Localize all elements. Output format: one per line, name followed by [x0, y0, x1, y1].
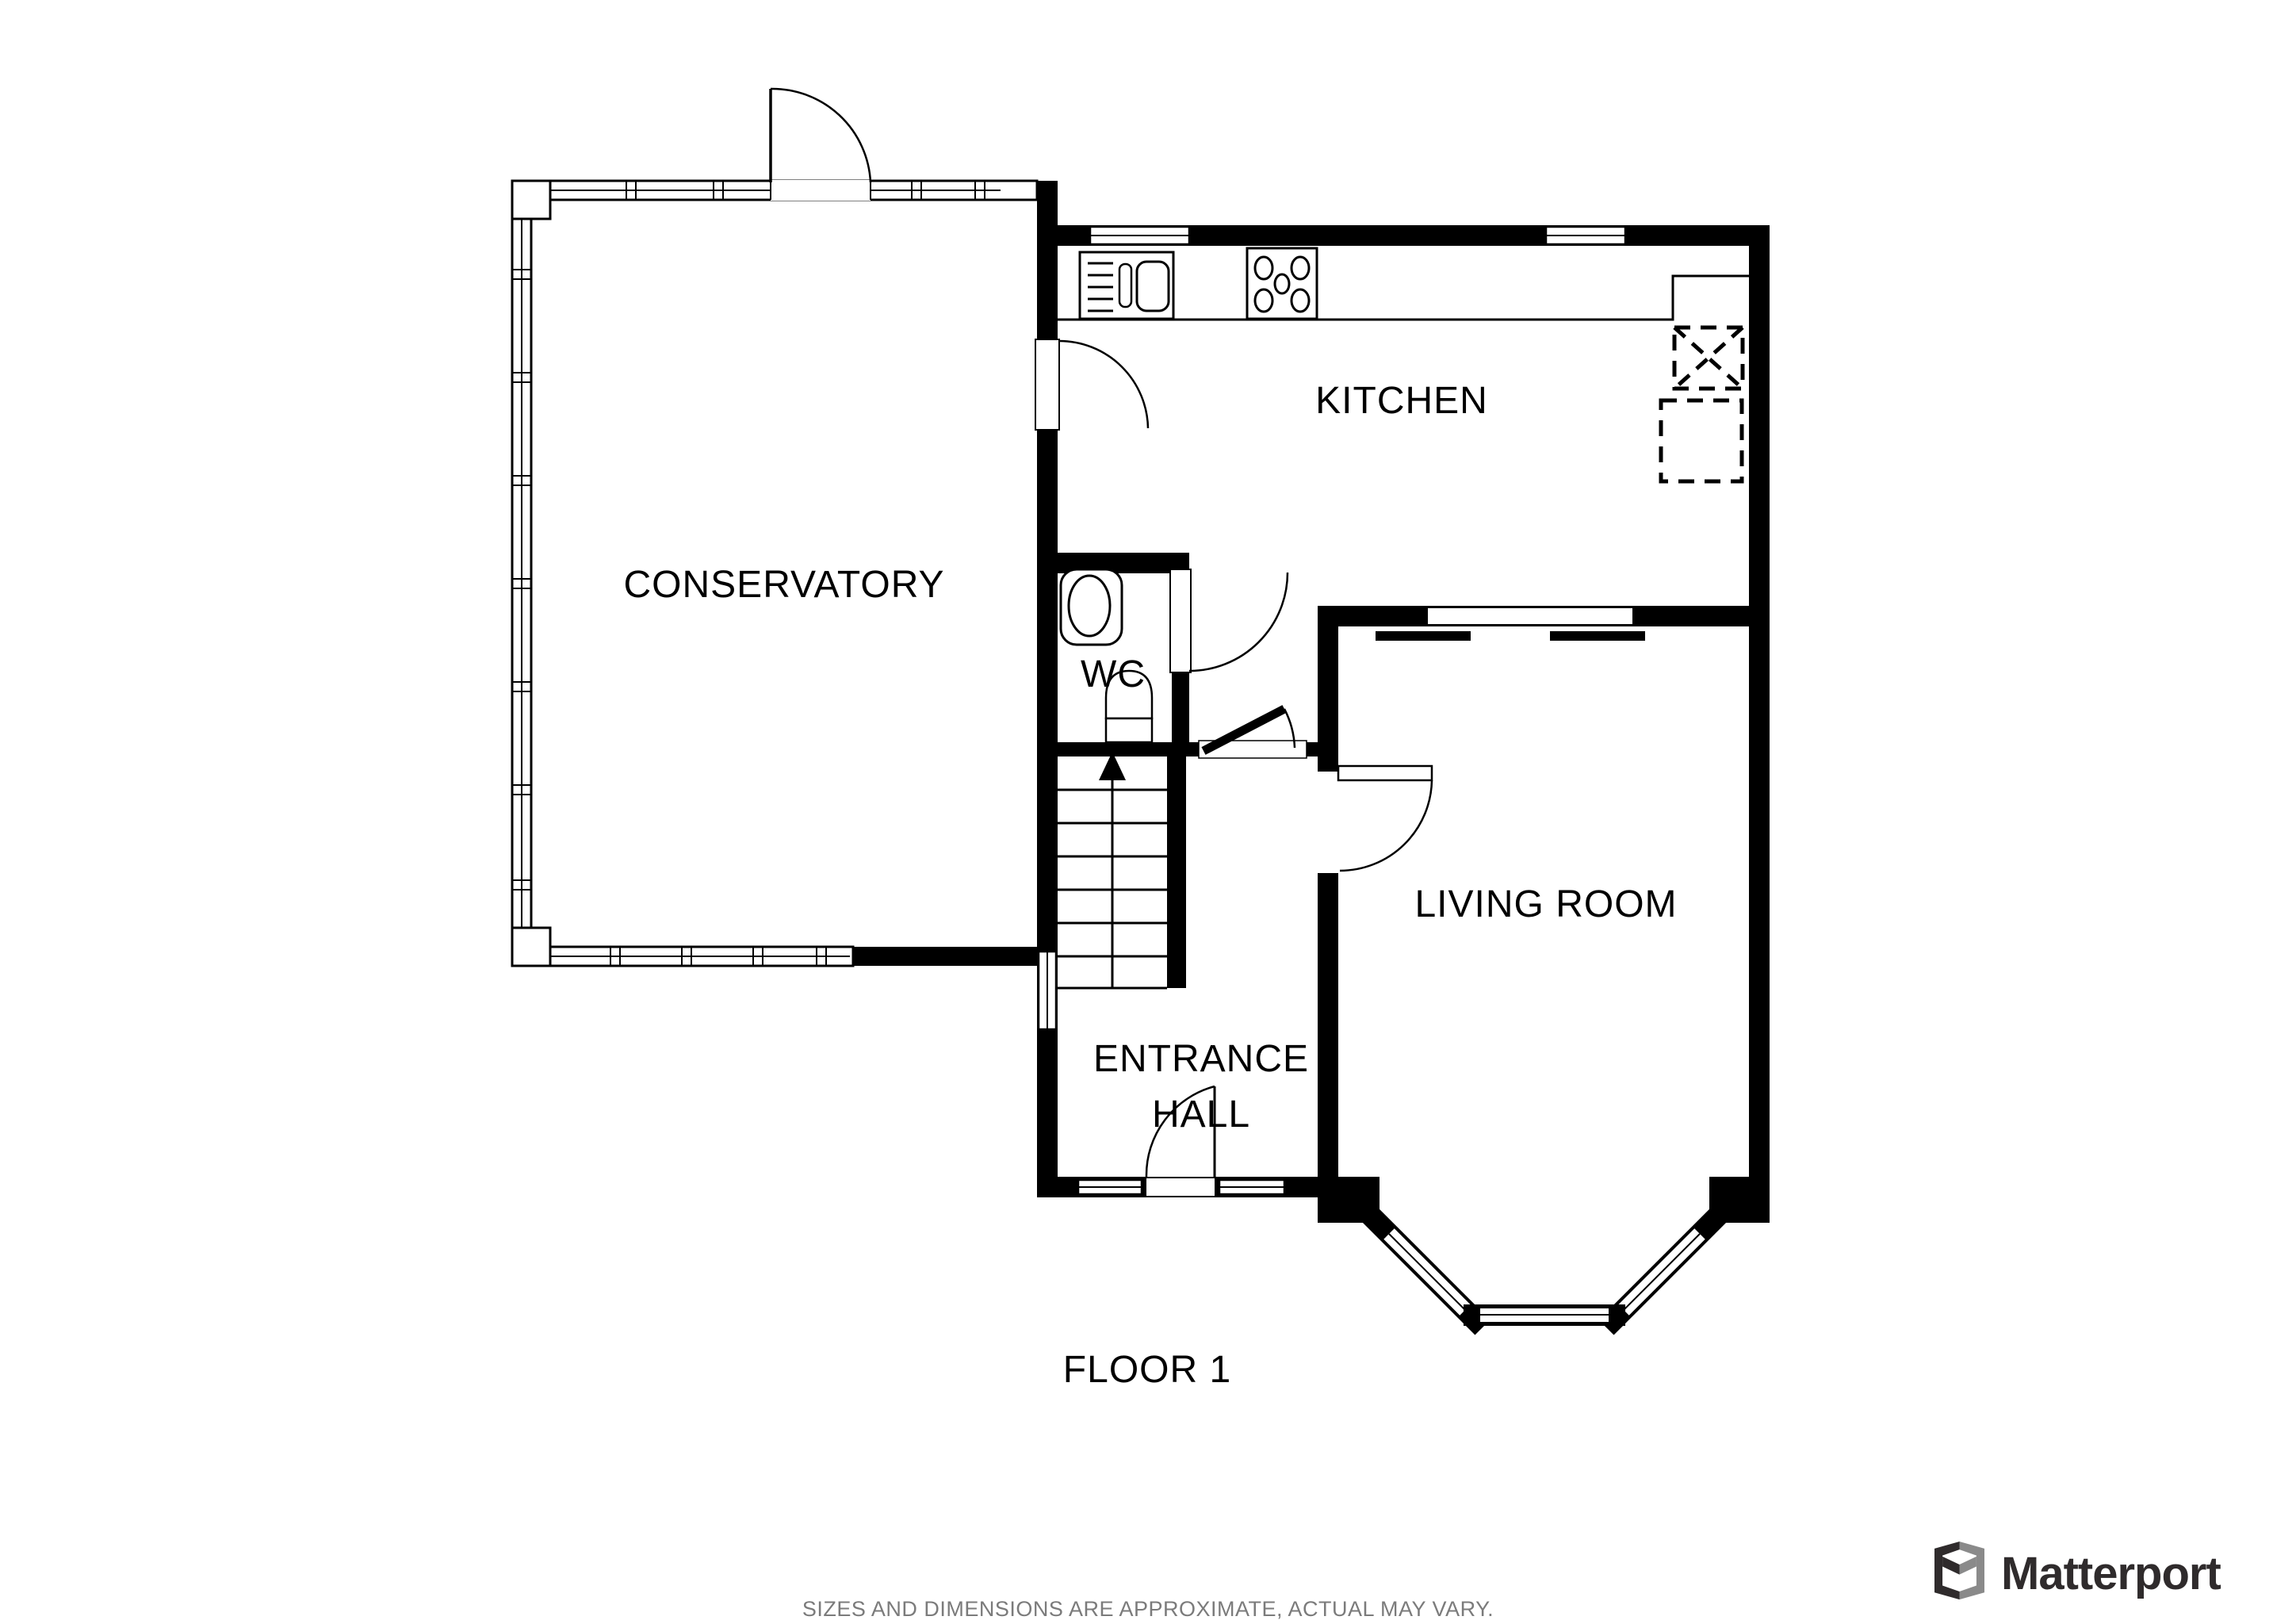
wash-basin-icon	[1061, 569, 1122, 645]
label-floor: FLOOR 1	[1063, 1349, 1231, 1391]
bay-glass-line-right	[1624, 1234, 1700, 1310]
kitchen-sink-icon	[1080, 252, 1173, 319]
radiator-bar-right	[1550, 631, 1645, 641]
floor-plan-page: CONSERVATORY KITCHEN WC LIVING ROOM ENTR…	[0, 0, 2296, 1624]
wall-stairs-right	[1167, 756, 1186, 988]
appliance-dashed-icon	[1661, 400, 1742, 481]
door-wc	[1170, 569, 1288, 672]
label-wc: WC	[1081, 653, 1146, 695]
bay-glass-line-left	[1389, 1234, 1465, 1310]
conservatory-corner-post-top	[512, 181, 550, 219]
label-entrance-line2: HALL	[1152, 1094, 1250, 1136]
kitchen-window-1	[1090, 227, 1189, 244]
door-swing-arc	[1189, 573, 1288, 671]
conservatory-door	[771, 89, 871, 201]
matterport-logo: Matterport	[1934, 1542, 2221, 1599]
walls	[850, 181, 1770, 1223]
wall-right	[1749, 225, 1770, 1221]
door-conservatory-kitchen	[1035, 339, 1148, 430]
hall-front-window-1	[1078, 1180, 1142, 1194]
wall-living-left	[1318, 606, 1338, 1197]
stairs	[1058, 752, 1167, 988]
room-labels: CONSERVATORY KITCHEN WC LIVING ROOM ENTR…	[624, 380, 1678, 1391]
bay-window	[1368, 1213, 1720, 1327]
kitchen-living-opening	[1427, 607, 1633, 625]
wall-conservatory-bottom-solid	[850, 947, 1040, 966]
conservatory-corner-post-bottom	[512, 928, 550, 966]
door-swing-arc	[1340, 780, 1432, 871]
footer-disclaimer: SIZES AND DIMENSIONS ARE APPROXIMATE, AC…	[802, 1597, 1494, 1621]
wall-spine	[1037, 181, 1058, 1197]
matterport-logo-wordmark: Matterport	[2001, 1548, 2221, 1599]
kitchen-window-2	[1546, 227, 1625, 244]
door-living-room	[1316, 766, 1432, 873]
hob-icon	[1247, 248, 1317, 319]
door-swing-arc	[1059, 341, 1148, 428]
door-leaf	[1338, 766, 1432, 780]
appliance-dashed-crossed-icon	[1674, 327, 1743, 389]
door-swing-arc	[771, 89, 871, 182]
label-entrance-line1: ENTRANCE	[1093, 1038, 1309, 1080]
hall-front-window-2	[1219, 1180, 1284, 1194]
door-hall-kitchen	[1199, 709, 1307, 758]
radiator-bar-left	[1376, 631, 1471, 641]
hall-west-window	[1039, 952, 1056, 1029]
label-conservatory: CONSERVATORY	[624, 564, 945, 606]
label-kitchen: KITCHEN	[1315, 380, 1488, 422]
kitchen-fixtures	[1058, 248, 1749, 641]
matterport-logo-icon	[1934, 1542, 1984, 1599]
conservatory-glazing	[512, 89, 1037, 966]
label-living-room: LIVING ROOM	[1414, 883, 1677, 925]
